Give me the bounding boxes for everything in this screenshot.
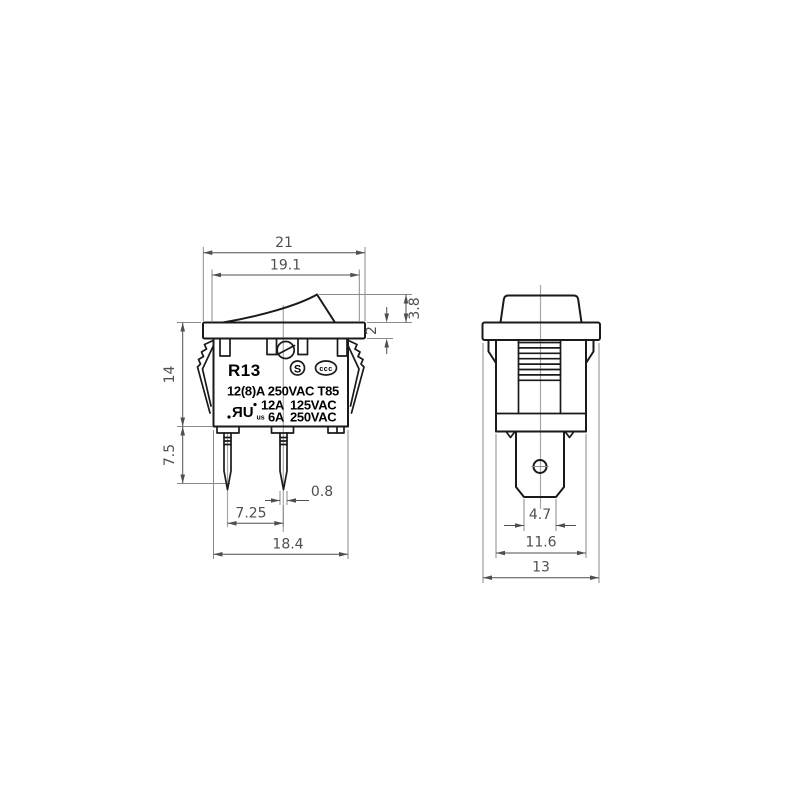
dim-flange-width: 21 xyxy=(203,235,365,255)
ur-certification-icon: ЯU us xyxy=(227,403,264,422)
front-rocker-actuator xyxy=(223,295,335,323)
svg-text:S: S xyxy=(294,364,301,376)
dim-pin-width: 0.8 xyxy=(265,484,333,503)
side-flange xyxy=(483,323,601,341)
front-tab-3 xyxy=(298,339,308,355)
dim-body-height: 14 xyxy=(162,323,185,427)
drawing-canvas: 21 19.1 3.8 2 14 xyxy=(0,0,800,800)
side-view xyxy=(483,296,601,498)
dim-pin-length: 7.5 xyxy=(162,427,185,484)
dim-body-depth: 11.6 xyxy=(496,535,586,556)
svg-text:ЯU: ЯU xyxy=(232,404,254,421)
dim-pin-pitch: 7.25 xyxy=(228,506,284,526)
dim-terminal-width: 4.7 xyxy=(504,507,576,528)
front-flange xyxy=(203,323,365,339)
dim-pin-pitch-label: 7.25 xyxy=(235,506,266,522)
rocker-switch-technical-drawing: 21 19.1 3.8 2 14 xyxy=(0,0,800,800)
front-tab-4 xyxy=(338,339,348,357)
dim-flange-width-label: 21 xyxy=(275,235,293,251)
dim-flange-thickness-label: 2 xyxy=(364,326,380,335)
dim-body-depth-label: 11.6 xyxy=(525,535,556,551)
dim-body-width: 18.4 xyxy=(214,537,349,557)
s-certification-icon: S xyxy=(291,361,305,376)
dim-body-width-label: 18.4 xyxy=(272,537,303,553)
front-left-mounting-clip xyxy=(198,341,214,413)
marking-rating3-volts: 250VAC xyxy=(290,410,337,425)
dim-inner-width-label: 19.1 xyxy=(270,258,301,274)
svg-text:us: us xyxy=(257,415,265,422)
marking-rating3-amps: 6A xyxy=(268,410,285,425)
front-tab-2 xyxy=(267,339,277,355)
marking-model: R13 xyxy=(228,361,261,380)
dim-rocker-height-label: 3.8 xyxy=(407,297,423,319)
dim-flange-thickness: 2 xyxy=(364,307,389,354)
front-tab-1 xyxy=(220,339,230,357)
front-right-mounting-clip xyxy=(348,341,364,413)
side-rib-column xyxy=(519,340,561,414)
dim-rocker-height: 3.8 xyxy=(404,295,423,323)
dimensions: 21 19.1 3.8 2 14 xyxy=(162,235,599,580)
dim-body-height-label: 14 xyxy=(162,366,178,384)
dim-pin-length-label: 7.5 xyxy=(162,444,178,466)
dim-flange-depth: 13 xyxy=(483,560,599,581)
marking-rating-primary: 12(8)A 250VAC T85 xyxy=(227,384,339,399)
side-body-right-chamfer xyxy=(586,340,594,363)
front-pivot-slash xyxy=(278,346,295,355)
svg-text:ccc: ccc xyxy=(319,366,332,373)
dim-pin-width-label: 0.8 xyxy=(311,484,333,500)
dim-inner-width: 19.1 xyxy=(212,258,359,278)
side-body-left-chamfer xyxy=(489,340,497,363)
dim-flange-depth-label: 13 xyxy=(532,560,550,576)
ccc-certification-icon: ccc xyxy=(316,361,337,375)
dim-terminal-width-label: 4.7 xyxy=(529,507,551,523)
